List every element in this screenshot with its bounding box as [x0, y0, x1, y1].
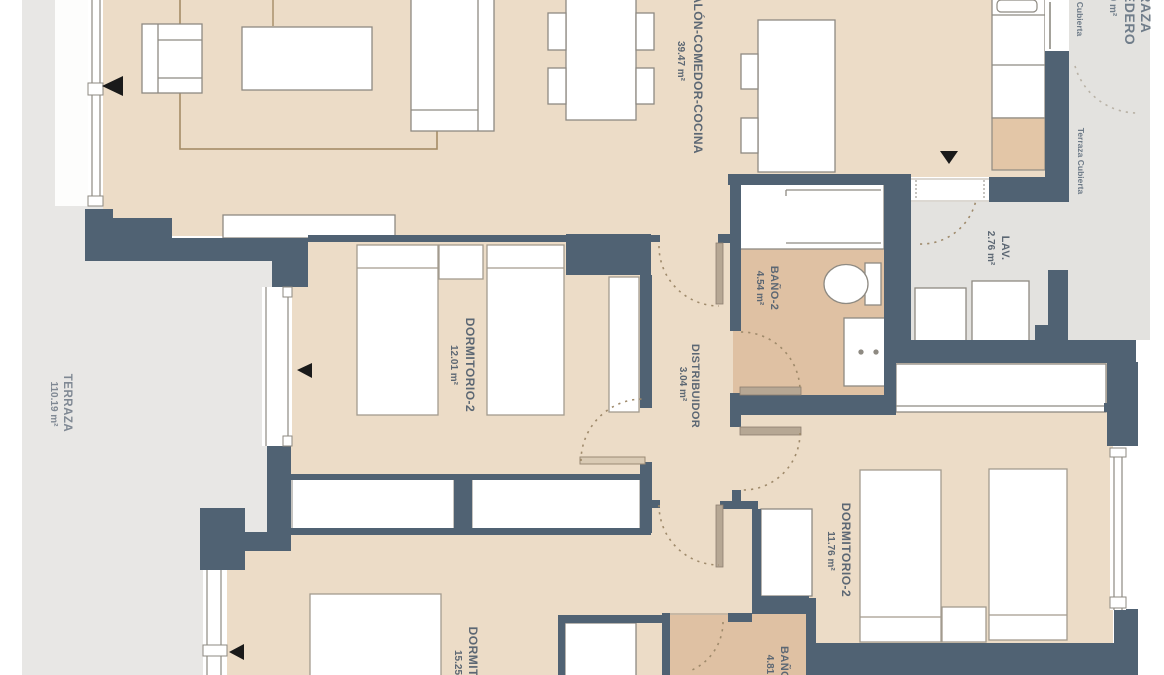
svg-text:12.01 m²: 12.01 m²: [448, 345, 459, 386]
svg-text:DORMITORIO-2: DORMITORIO-2: [839, 503, 853, 597]
svg-text:SALÓN-COMEDOR-COCINA: SALÓN-COMEDOR-COCINA: [691, 0, 706, 154]
svg-text:Terraza Cubierta: Terraza Cubierta: [1075, 0, 1085, 36]
svg-text:110.19 m²: 110.19 m²: [48, 381, 59, 427]
svg-text:TERRAZA: TERRAZA: [1138, 0, 1154, 33]
svg-text:3.04 m²: 3.04 m²: [677, 367, 688, 402]
svg-text:DORMITORIO-2: DORMITORIO-2: [463, 318, 477, 412]
svg-text:TERRAZA: TERRAZA: [61, 374, 73, 432]
svg-text:4.81 m²: 4.81 m²: [764, 655, 775, 675]
svg-text:LAV.: LAV.: [999, 236, 1011, 261]
svg-text:15.25 m²: 15.25 m²: [452, 650, 463, 675]
svg-text:DORMITORIO: DORMITORIO: [466, 627, 480, 675]
svg-text:3.50 m²: 3.50 m²: [1107, 0, 1118, 17]
svg-text:TENDEDERO: TENDEDERO: [1122, 0, 1138, 45]
svg-text:4.54 m²: 4.54 m²: [754, 271, 765, 306]
svg-text:11.76 m²: 11.76 m²: [825, 531, 836, 571]
svg-text:BAÑO: BAÑO: [778, 646, 791, 675]
svg-text:2.76 m²: 2.76 m²: [985, 231, 996, 266]
svg-text:Terraza Cubierta: Terraza Cubierta: [1076, 128, 1086, 195]
svg-text:BAÑO-2: BAÑO-2: [768, 266, 781, 311]
svg-text:DISTRIBUIDOR: DISTRIBUIDOR: [689, 344, 701, 428]
svg-text:39.47 m²: 39.47 m²: [675, 41, 686, 82]
